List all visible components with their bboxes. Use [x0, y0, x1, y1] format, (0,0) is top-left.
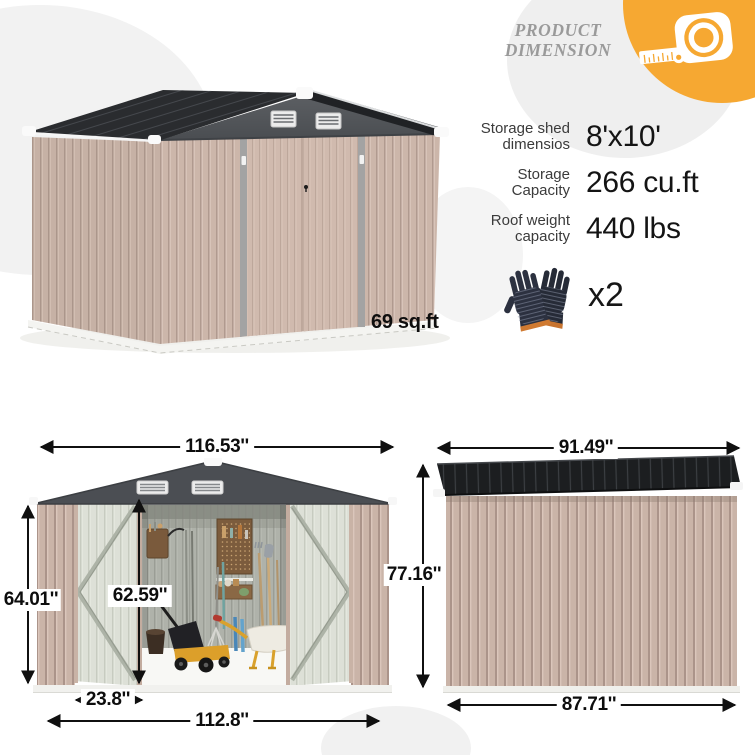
dim-front-overall-width: 116.53'' — [180, 436, 254, 458]
spec-row-capacity: Storage Capacity 266 cu.ft — [448, 166, 698, 200]
floor-area-label: 69 sq.ft — [371, 311, 439, 334]
ridge-cap — [296, 87, 313, 99]
gloves-quantity: x2 — [588, 276, 624, 315]
spec-row-roof-weight: Roof weight capacity 440 lbs — [448, 212, 681, 246]
page-title-line2: DIMENSION — [500, 40, 616, 60]
open-door-right — [290, 501, 353, 686]
dim-side-overall-height: 77.16'' — [384, 564, 444, 586]
product-dimension-infographic: PRODUCT DIMENSION Storage shed dimensios… — [0, 0, 755, 755]
gable-vent — [137, 481, 168, 494]
dim-front-base-width: 112.8'' — [190, 710, 253, 732]
spec-value: 8'x10' — [586, 120, 661, 154]
side-wall — [446, 496, 737, 686]
dim-door-height: 62.59'' — [108, 585, 172, 607]
dim-side-roof-length: 91.49'' — [554, 437, 618, 459]
illustration-canvas — [0, 0, 755, 755]
front-right-wall — [351, 504, 389, 685]
spec-row-dimensions: Storage shed dimensios 8'x10' — [448, 120, 661, 154]
page-title-line1: PRODUCT — [500, 20, 616, 40]
spec-label: Roof weight capacity — [448, 213, 570, 246]
side-view-illustration — [433, 456, 743, 693]
gable-vent — [271, 111, 296, 127]
dim-door-width: 23.8'' — [81, 689, 135, 711]
spec-label: Storage Capacity — [448, 167, 570, 200]
spec-value: 266 cu.ft — [586, 166, 698, 200]
side-base — [443, 686, 740, 692]
gable-vent — [192, 481, 223, 494]
door-handle — [242, 156, 247, 165]
dim-side-base-length: 87.71'' — [557, 694, 621, 716]
hanging-basket — [147, 529, 168, 558]
door-handle — [360, 155, 365, 164]
page-title: PRODUCT DIMENSION — [500, 20, 616, 60]
bucket — [146, 632, 165, 654]
gable-vent — [316, 113, 341, 129]
dim-front-wall-height: 64.01'' — [1, 589, 61, 611]
spec-value: 440 lbs — [586, 212, 681, 246]
front-view-illustration — [29, 455, 397, 693]
spec-label: Storage shed dimensios — [448, 121, 570, 154]
